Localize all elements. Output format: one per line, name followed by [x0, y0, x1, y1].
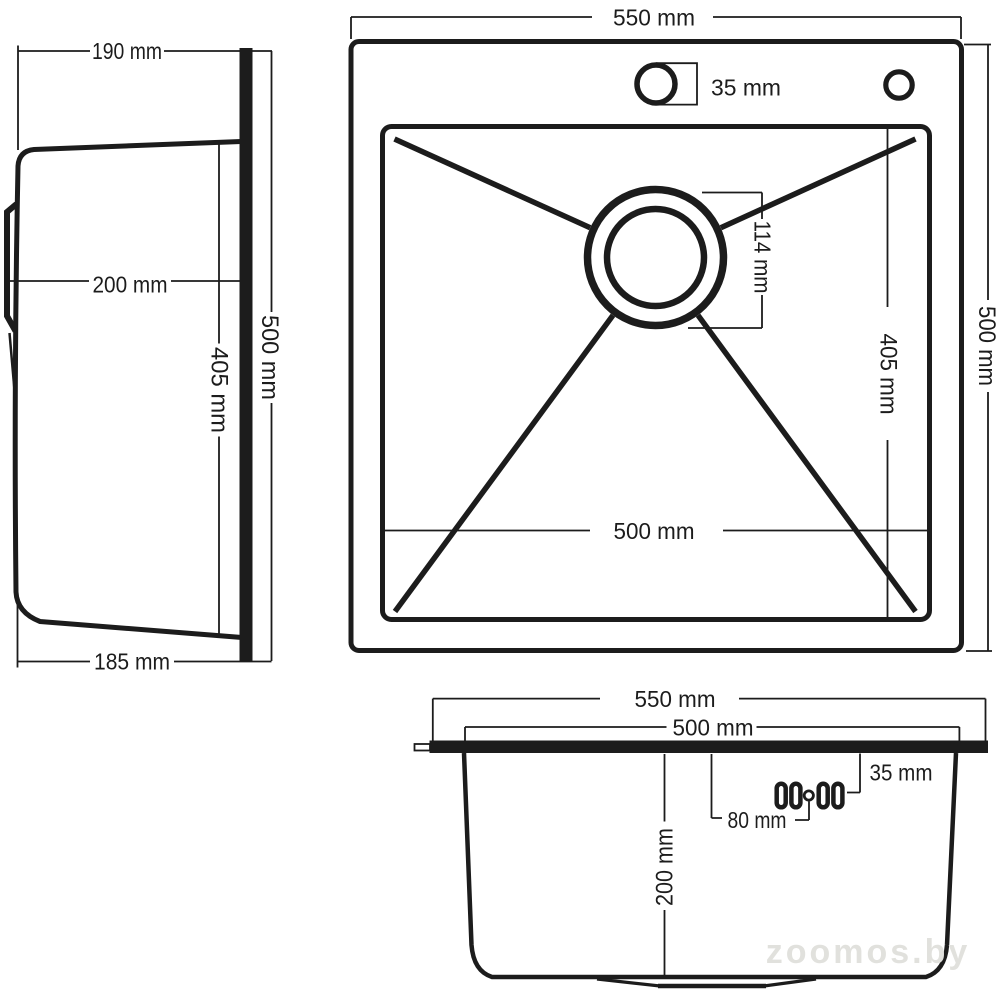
svg-text:zoomos.by: zoomos.by [766, 933, 971, 971]
svg-text:114 mm: 114 mm [750, 221, 776, 294]
svg-text:500 mm: 500 mm [256, 315, 283, 400]
svg-text:200 mm: 200 mm [652, 828, 679, 906]
svg-text:550 mm: 550 mm [635, 686, 716, 712]
svg-text:35 mm: 35 mm [870, 760, 933, 786]
svg-text:550 mm: 550 mm [613, 5, 695, 31]
svg-text:190 mm: 190 mm [92, 38, 162, 64]
svg-text:200 mm: 200 mm [93, 272, 168, 298]
svg-text:405 mm: 405 mm [206, 347, 233, 433]
svg-text:185 mm: 185 mm [94, 649, 170, 675]
svg-text:500 mm: 500 mm [973, 306, 1000, 386]
svg-text:500 mm: 500 mm [673, 715, 754, 741]
svg-text:405 mm: 405 mm [875, 334, 902, 415]
svg-text:500 mm: 500 mm [614, 518, 695, 544]
svg-text:80 mm: 80 mm [728, 807, 787, 833]
svg-text:35 mm: 35 mm [711, 75, 781, 101]
